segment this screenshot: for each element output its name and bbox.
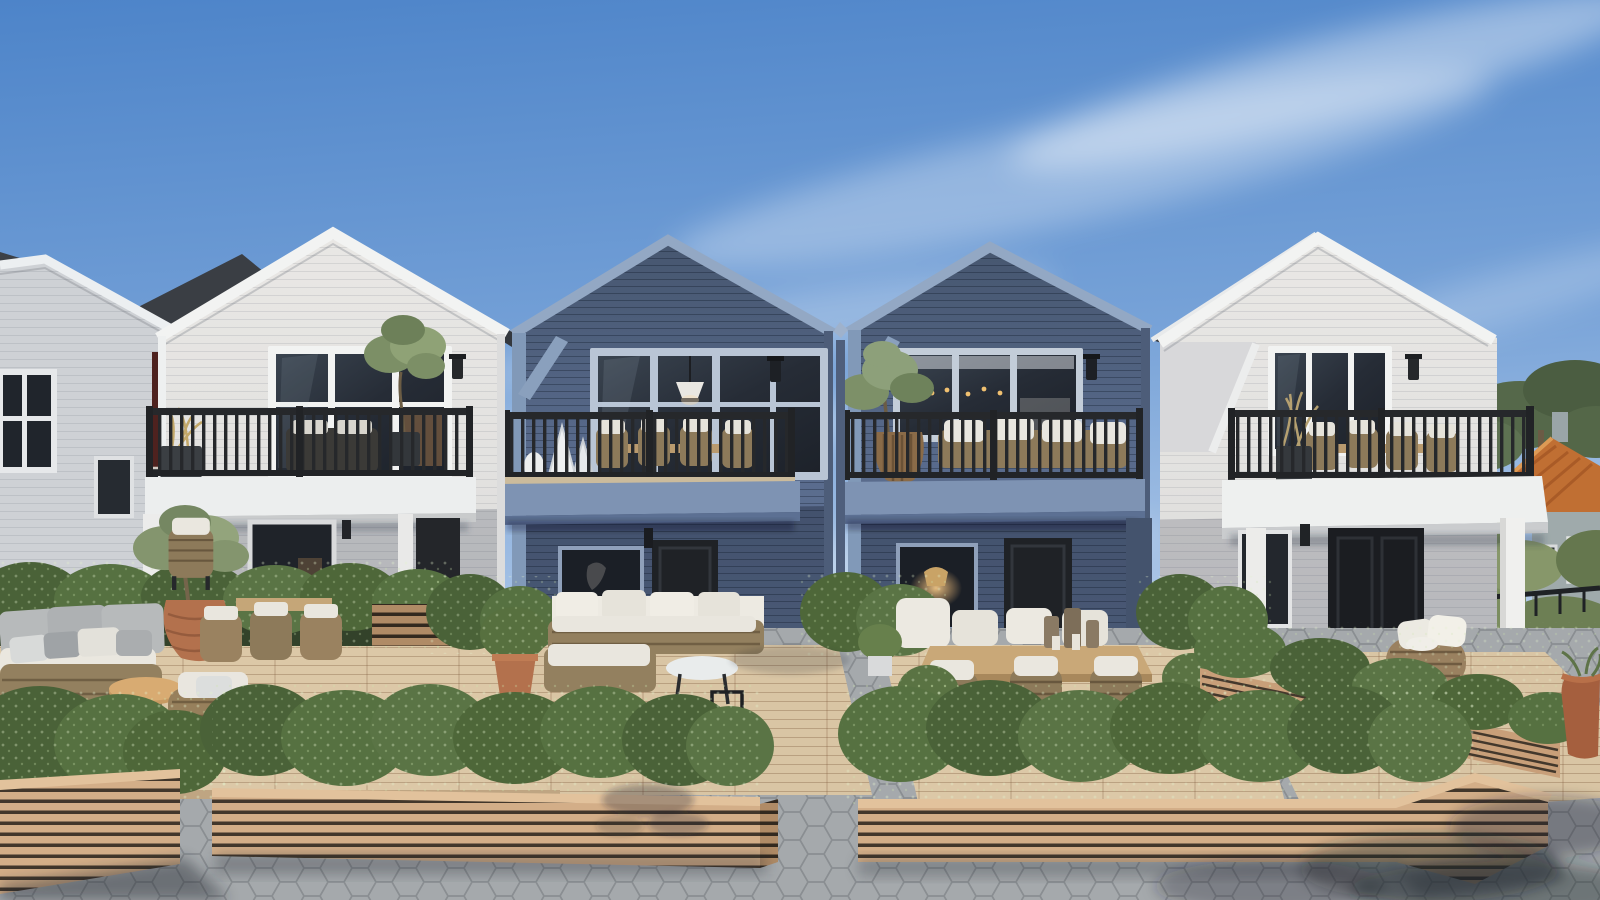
balcony-slab <box>498 481 800 516</box>
planter-box-2 <box>200 684 778 868</box>
shadow-walk-center <box>730 646 850 674</box>
porch-sconce <box>342 520 351 539</box>
porch-sconce <box>644 528 653 548</box>
balcony-railing <box>148 410 472 474</box>
townhouse-2-balcony <box>498 408 800 531</box>
gray-house-window-small <box>96 458 132 516</box>
shadow-planter-2 <box>215 854 767 874</box>
balcony-slab <box>838 479 1145 515</box>
scene-canvas <box>0 0 1600 900</box>
rendered-scene <box>0 0 1600 900</box>
balcony-slab <box>1222 476 1548 528</box>
porch-sconce <box>1300 524 1310 546</box>
gray-house-window <box>0 372 54 470</box>
townhouse-3-balcony <box>838 408 1145 530</box>
townhouse-4-balcony <box>1222 392 1548 546</box>
